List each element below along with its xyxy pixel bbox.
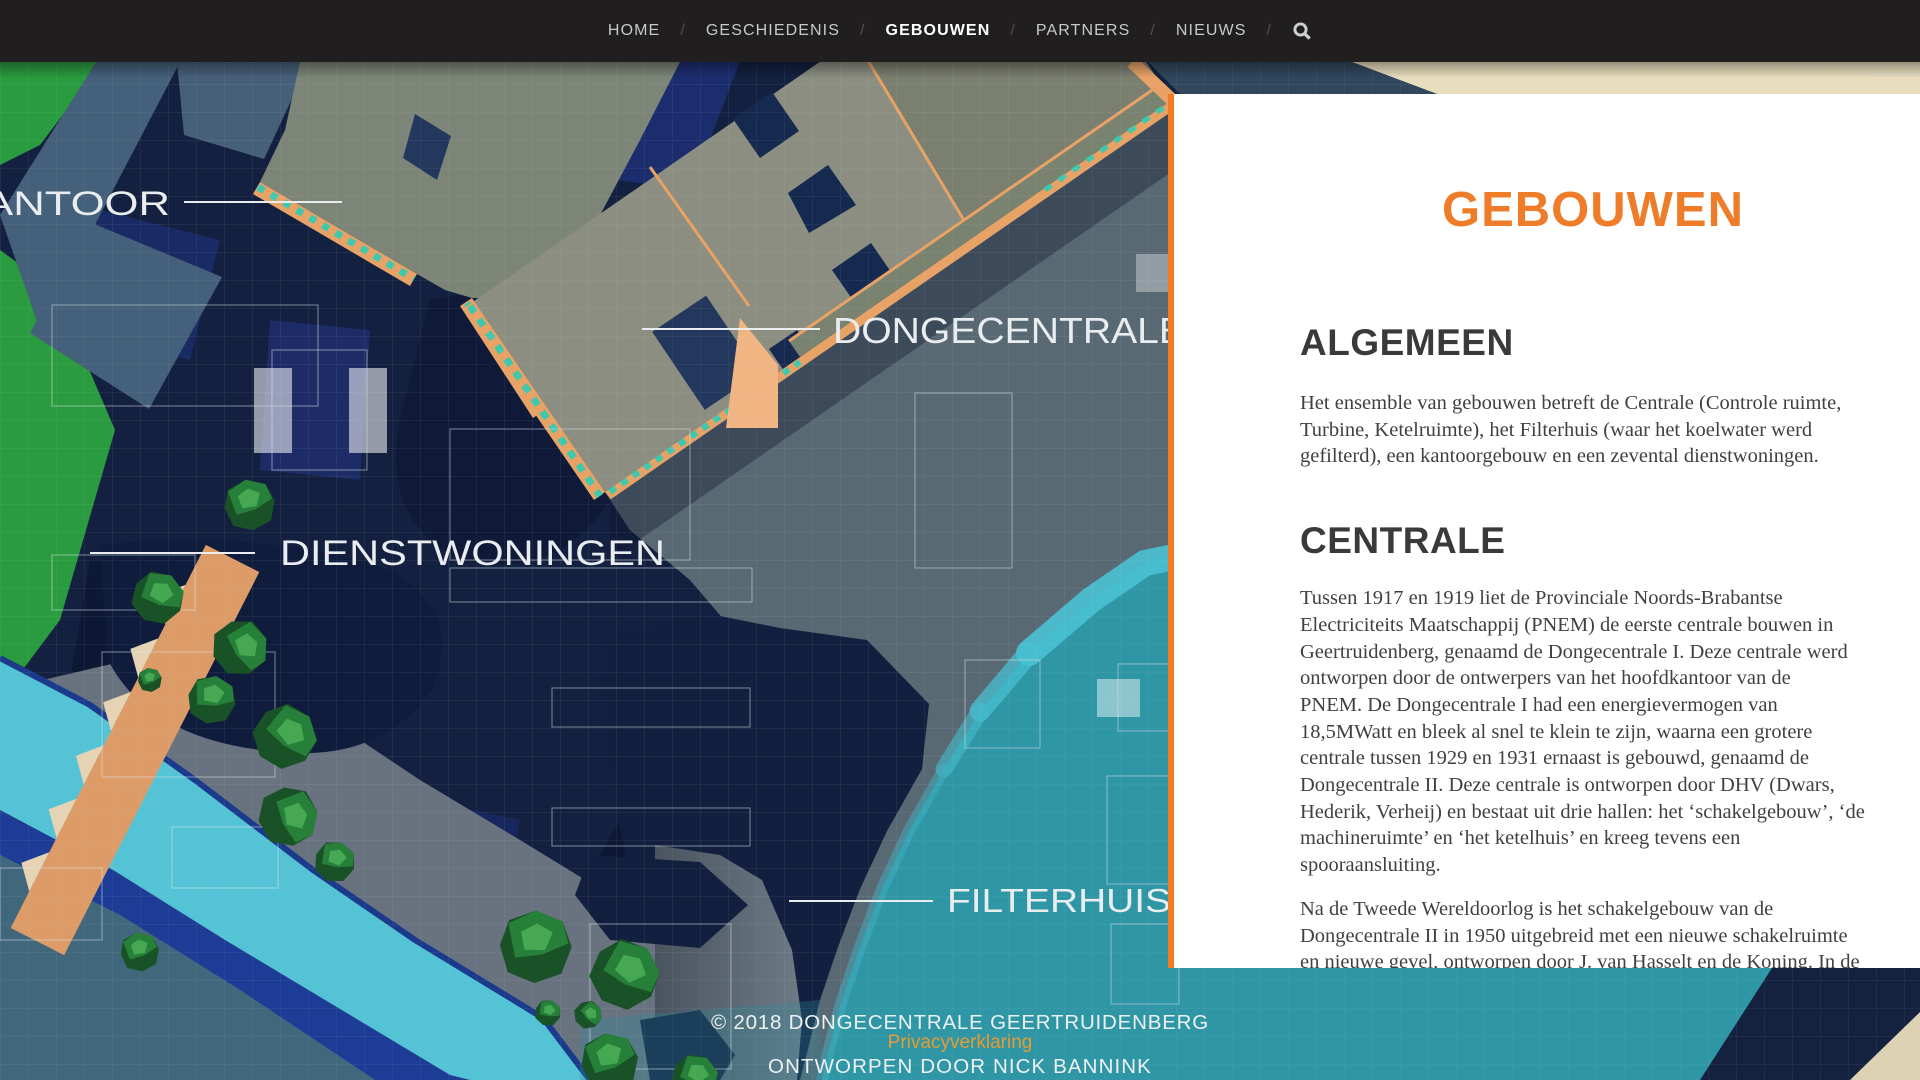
svg-text:KANTOOR: KANTOOR	[0, 185, 170, 223]
svg-text:DONGECENTRALE: DONGECENTRALE	[833, 310, 1185, 351]
svg-text:FILTERHUIS: FILTERHUIS	[947, 882, 1171, 919]
svg-text:DIENSTWONINGEN: DIENSTWONINGEN	[280, 534, 665, 573]
